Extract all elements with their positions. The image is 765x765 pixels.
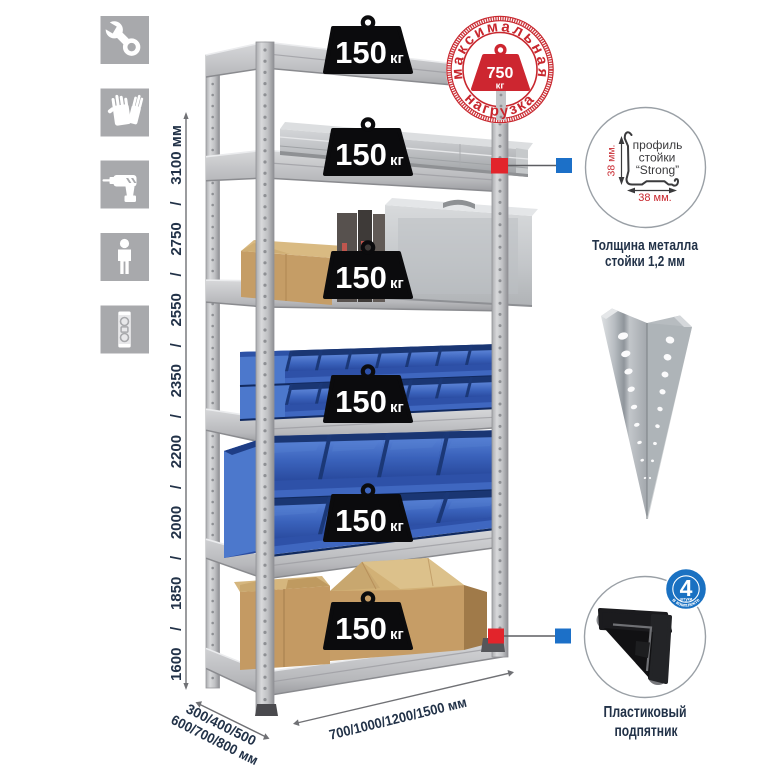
- svg-text:150: 150: [335, 611, 387, 646]
- svg-text:750: 750: [487, 65, 514, 82]
- svg-text:Пластиковый: Пластиковый: [604, 704, 687, 721]
- svg-text:150: 150: [335, 384, 387, 419]
- svg-text:кг: кг: [390, 626, 404, 643]
- svg-text:“Strong”: “Strong”: [636, 163, 679, 177]
- svg-text:кг: кг: [390, 152, 404, 169]
- svg-text:1600 / 1850 / 2000: 1600 / 1850 / 2000 / 2200 / 2350 / 2550 …: [168, 125, 185, 681]
- svg-text:кг: кг: [390, 50, 404, 67]
- svg-text:кг: кг: [496, 81, 505, 92]
- svg-text:38 мм.: 38 мм.: [606, 145, 618, 177]
- svg-text:штуки: штуки: [680, 597, 693, 602]
- svg-text:Толщина металла: Толщина металла: [592, 238, 699, 254]
- svg-text:150: 150: [335, 260, 387, 295]
- svg-text:38 мм.: 38 мм.: [638, 192, 671, 204]
- svg-text:150: 150: [335, 35, 387, 70]
- svg-text:150: 150: [335, 137, 387, 172]
- svg-text:кг: кг: [390, 518, 404, 535]
- svg-text:150: 150: [335, 503, 387, 538]
- svg-text:подпятник: подпятник: [615, 723, 679, 740]
- svg-text:кг: кг: [390, 275, 404, 292]
- svg-text:стойки 1,2 мм: стойки 1,2 мм: [605, 254, 685, 270]
- svg-text:кг: кг: [390, 399, 404, 416]
